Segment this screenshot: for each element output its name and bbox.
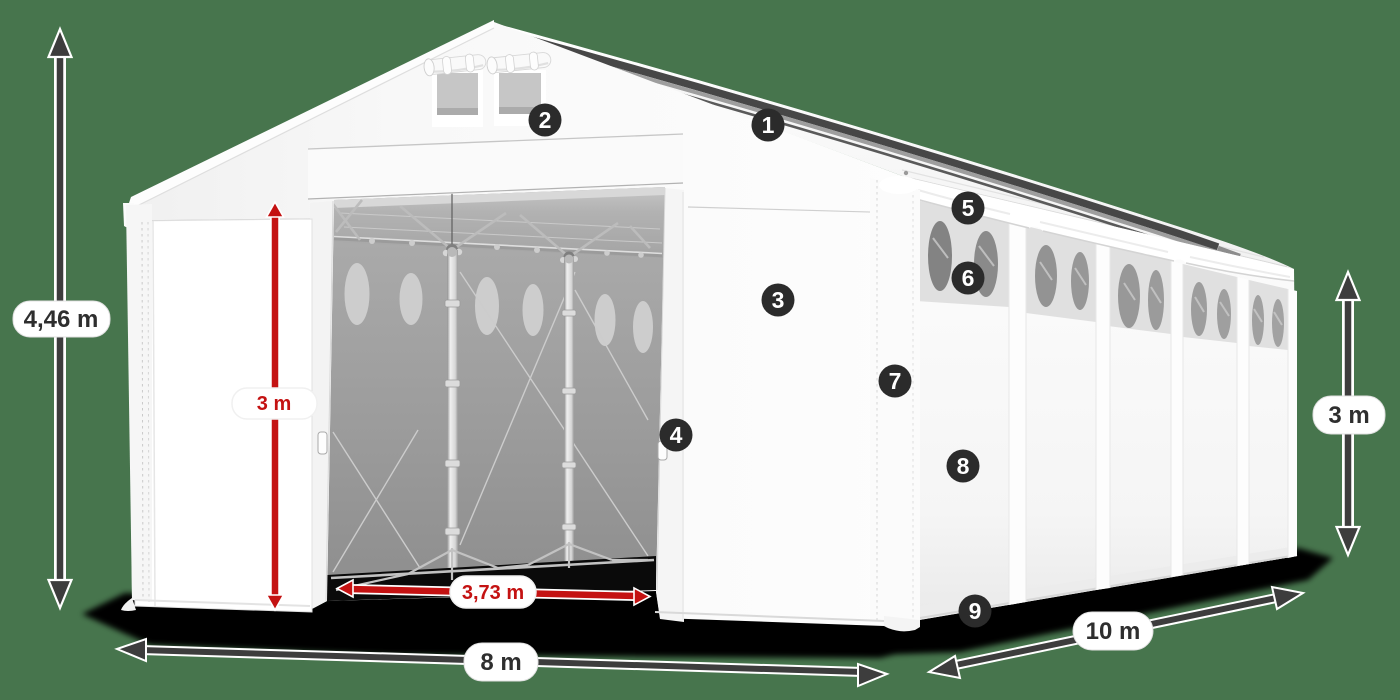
- svg-text:8: 8: [957, 453, 970, 479]
- svg-text:2: 2: [539, 107, 552, 133]
- svg-text:10 m: 10 m: [1086, 618, 1141, 645]
- svg-text:4: 4: [670, 422, 683, 448]
- svg-text:3: 3: [772, 287, 785, 313]
- svg-text:3,73 m: 3,73 m: [462, 582, 524, 604]
- svg-text:1: 1: [762, 112, 775, 138]
- svg-text:5: 5: [962, 195, 975, 221]
- svg-text:3 m: 3 m: [1328, 402, 1369, 429]
- svg-text:9: 9: [969, 598, 982, 624]
- svg-text:6: 6: [962, 265, 975, 291]
- svg-text:4,46 m: 4,46 m: [24, 306, 99, 333]
- svg-text:7: 7: [889, 368, 902, 394]
- svg-text:8 m: 8 m: [480, 649, 521, 676]
- svg-text:3 m: 3 m: [257, 393, 291, 415]
